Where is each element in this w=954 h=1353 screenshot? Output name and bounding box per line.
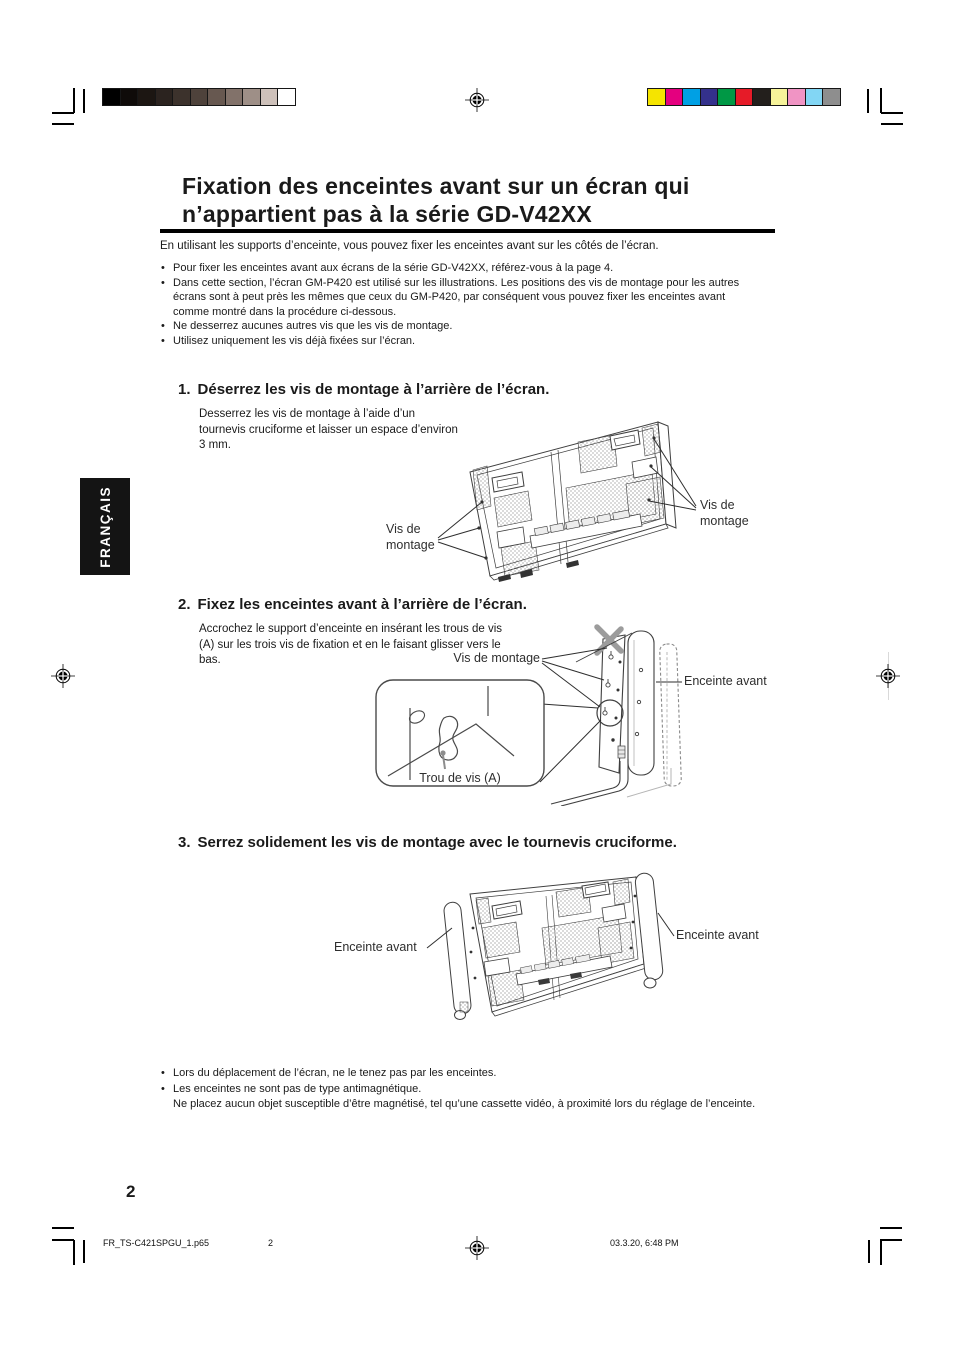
crop-mark: [880, 1240, 882, 1265]
calibration-patch: [260, 88, 279, 106]
label-line: Vis de: [386, 522, 435, 538]
label-screw-hole-a: Trou de vis (A): [400, 771, 520, 787]
registration-mark-right: [876, 664, 900, 688]
crop-mark: [880, 88, 882, 113]
label-mounting-screws-left: Vis de montage: [386, 522, 435, 553]
bullet-glyph: •: [161, 1082, 165, 1098]
note-text: Les enceintes ne sont pas de type antima…: [173, 1083, 421, 1095]
label-line: montage: [386, 538, 435, 554]
step2-title: Fixez les enceintes avant à l’arrière de…: [198, 596, 527, 613]
bottom-notes-list: •Lors du déplacement de l’écran, ne le t…: [160, 1066, 820, 1113]
crop-mark: [881, 123, 903, 125]
crop-mark: [52, 112, 74, 114]
list-item: •Les enceintes ne sont pas de type antim…: [160, 1082, 820, 1098]
calibration-patch: [700, 88, 719, 106]
calibration-patch: [155, 88, 174, 106]
list-item: •Pour fixer les enceintes avant aux écra…: [160, 261, 752, 276]
page-title-line1: Fixation des enceintes avant sur un écra…: [182, 172, 689, 200]
page-number: 2: [126, 1182, 135, 1202]
calibration-patch: [822, 88, 841, 106]
list-item: •Utilisez uniquement les vis déjà fixées…: [160, 334, 752, 349]
note-text: Ne placez aucun objet susceptible d’être…: [173, 1098, 755, 1110]
top-notes-list: •Pour fixer les enceintes avant aux écra…: [160, 261, 752, 349]
calibration-patch: [682, 88, 701, 106]
list-item: •Ne desserrez aucunes autres vis que les…: [160, 319, 752, 334]
calibration-patch: [735, 88, 754, 106]
step3-heading: 3. Serrez solidement les vis de montage …: [178, 834, 677, 851]
calibration-patch: [805, 88, 824, 106]
page-title: Fixation des enceintes avant sur un écra…: [182, 172, 689, 228]
figure-step1-rear-screen: Vis de montage Vis de montage: [370, 414, 792, 584]
calibration-patch: [647, 88, 666, 106]
bullet-glyph: •: [161, 276, 165, 291]
title-rule: [160, 229, 775, 233]
figure-step3-speakers-attached: Enceinte avant Enceinte avant: [330, 866, 792, 1030]
note-text: Dans cette section, l’écran GM-P420 est …: [173, 277, 739, 318]
bullet-glyph: •: [161, 334, 165, 349]
crop-mark: [868, 1240, 870, 1263]
step3-title: Serrez solidement les vis de montage ave…: [198, 834, 677, 851]
page-title-line2: n’appartient pas à la série GD-V42XX: [182, 200, 689, 228]
language-tab-label: FRANÇAIS: [98, 486, 113, 568]
note-text: Ne desserrez aucunes autres vis que les …: [173, 320, 452, 332]
footer-filename: FR_TS-C421SPGU_1.p65: [103, 1238, 209, 1248]
step1-heading: 1. Déserrez les vis de montage à l’arriè…: [178, 381, 549, 398]
label-mounting-screws-right: Vis de montage: [700, 498, 749, 529]
label-front-speaker: Enceinte avant: [684, 674, 767, 690]
bullet-glyph: •: [161, 319, 165, 334]
bullet-glyph: •: [161, 1066, 165, 1082]
crop-mark: [83, 89, 85, 113]
footer-page-number: 2: [268, 1238, 273, 1248]
crop-mark: [52, 1227, 74, 1229]
manual-page: FRANÇAIS Fixation des enceintes avant su…: [0, 0, 954, 1353]
calibration-patch: [752, 88, 771, 106]
list-item: •Lors du déplacement de l’écran, ne le t…: [160, 1066, 820, 1082]
calibration-patch: [242, 88, 261, 106]
crop-mark: [73, 1240, 75, 1265]
label-front-speaker-left: Enceinte avant: [334, 940, 417, 956]
calibration-patch: [770, 88, 789, 106]
step2-heading: 2. Fixez les enceintes avant à l’arrière…: [178, 596, 527, 613]
crop-mark: [880, 1239, 902, 1241]
crop-mark: [867, 89, 869, 113]
note-text: Pour fixer les enceintes avant aux écran…: [173, 262, 613, 274]
calibration-patch: [190, 88, 209, 106]
label-mounting-screws: Vis de montage: [428, 651, 540, 667]
calibration-patch: [120, 88, 139, 106]
calibration-patch: [225, 88, 244, 106]
note-text: Lors du déplacement de l’écran, ne le te…: [173, 1067, 496, 1079]
label-line: Vis de: [700, 498, 749, 514]
calibration-patch: [207, 88, 226, 106]
grayscale-calibration-bar: [103, 88, 296, 106]
note-text: Utilisez uniquement les vis déjà fixées …: [173, 335, 415, 347]
label-line: montage: [700, 514, 749, 530]
registration-mark-left: [51, 664, 75, 688]
crop-mark: [881, 112, 903, 114]
calibration-patch: [717, 88, 736, 106]
figure-step2-bracket-detail: Vis de montage Enceinte avant Trou de vi…: [370, 618, 792, 806]
crop-mark: [73, 88, 75, 113]
list-item: •Dans cette section, l’écran GM-P420 est…: [160, 276, 752, 320]
step3-number: 3.: [178, 834, 191, 851]
calibration-patch: [787, 88, 806, 106]
step2-number: 2.: [178, 596, 191, 613]
bullet-glyph: •: [161, 261, 165, 276]
language-tab: FRANÇAIS: [80, 478, 130, 575]
label-front-speaker-right: Enceinte avant: [676, 928, 759, 944]
registration-mark-bottom: [465, 1236, 489, 1260]
calibration-patch: [665, 88, 684, 106]
crop-mark: [83, 1240, 85, 1263]
calibration-patch: [102, 88, 121, 106]
calibration-patch: [137, 88, 156, 106]
intro-text: En utilisant les supports d’enceinte, vo…: [160, 240, 659, 252]
step1-number: 1.: [178, 381, 191, 398]
step1-title: Déserrez les vis de montage à l’arrière …: [198, 381, 550, 398]
calibration-patch: [172, 88, 191, 106]
registration-mark-top: [465, 88, 489, 112]
footer-datetime: 03.3.20, 6:48 PM: [610, 1238, 679, 1248]
list-item: Ne placez aucun objet susceptible d’être…: [160, 1097, 820, 1113]
color-calibration-bar: [648, 88, 841, 106]
crop-mark: [52, 1239, 74, 1241]
crop-mark: [880, 1227, 902, 1229]
crop-mark: [52, 123, 74, 125]
calibration-patch: [277, 88, 296, 106]
